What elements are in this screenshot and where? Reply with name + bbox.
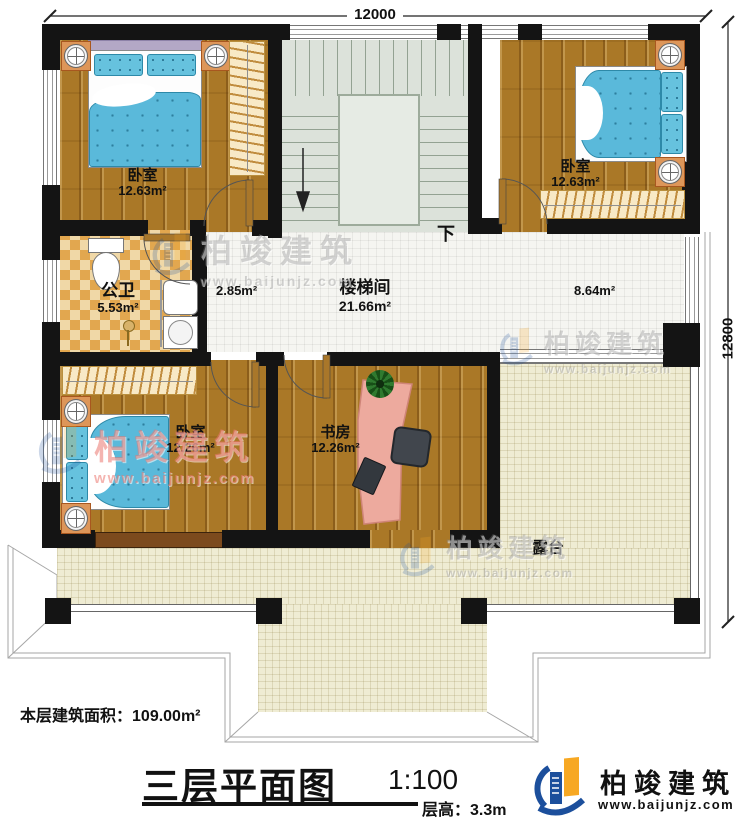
wall-segment xyxy=(468,24,482,234)
terrace-pillar xyxy=(45,598,71,624)
terrace-railing xyxy=(690,367,699,600)
potted-plant xyxy=(366,370,394,398)
room-label-terrace: 露台 xyxy=(520,540,576,558)
wall-segment xyxy=(256,352,284,366)
corridor-railing-window xyxy=(685,237,699,323)
terrace-bottom-floor xyxy=(57,548,690,608)
room-label-stair-hall: 楼梯间 21.66m² xyxy=(300,278,430,314)
nightstand xyxy=(61,41,91,71)
lamp-icon xyxy=(204,44,228,68)
wall-segment xyxy=(252,220,282,236)
wardrobe xyxy=(229,41,265,176)
room-label-bedroom-bottom-left: 卧室 12.26m² xyxy=(153,424,228,456)
terrace-railing xyxy=(485,604,676,612)
room-label-bedroom-top-right: 卧室 12.63m² xyxy=(538,158,613,190)
wall-segment xyxy=(42,24,60,70)
room-label-bathroom: 公卫 5.53m² xyxy=(88,281,148,315)
wardrobe xyxy=(62,366,197,395)
dimension-top-value: 12000 xyxy=(347,6,403,23)
terrace-railing xyxy=(69,604,258,612)
lamp-icon xyxy=(64,44,88,68)
lamp-icon xyxy=(658,43,682,67)
window xyxy=(542,25,648,39)
room-name: 卧室 xyxy=(153,424,228,441)
wardrobe xyxy=(540,190,685,219)
landing-area-label: 2.85m² xyxy=(216,283,257,298)
wall-segment xyxy=(42,322,60,420)
wall-segment xyxy=(266,366,278,532)
room-name: 卧室 xyxy=(538,158,613,175)
window xyxy=(43,260,57,322)
floor-area-annotation: 本层建筑面积：109.00m² xyxy=(20,702,201,726)
wall-segment xyxy=(190,220,206,236)
sliding-door xyxy=(95,532,224,548)
lamp-icon xyxy=(64,506,88,531)
nightstand xyxy=(61,503,91,534)
sink-basin xyxy=(168,320,193,345)
window xyxy=(43,420,57,482)
toilet-tank xyxy=(88,238,124,253)
nightstand xyxy=(61,396,91,427)
bed-pillow xyxy=(94,54,143,76)
room-name: 楼梯间 xyxy=(300,278,430,298)
brand-logo-icon xyxy=(531,756,593,818)
room-area: 12.26m² xyxy=(298,441,373,456)
terrace-railing-window xyxy=(500,349,663,364)
title-underline xyxy=(142,802,418,806)
terrace-pillar xyxy=(674,598,700,624)
stair-right-flight xyxy=(418,104,468,232)
bed-pillow xyxy=(66,462,88,502)
nightstand xyxy=(201,41,231,71)
window xyxy=(290,25,437,39)
bed-pillow xyxy=(661,114,683,154)
wall-segment xyxy=(663,323,700,367)
drain-pipe xyxy=(127,330,129,346)
office-chair xyxy=(390,426,433,469)
lamp-icon xyxy=(658,160,682,184)
room-name: 卧室 xyxy=(105,167,180,184)
wall-segment xyxy=(482,218,502,234)
room-area: 12.26m² xyxy=(153,441,228,456)
brand-company-name: 柏竣建筑 xyxy=(600,762,736,801)
floor-area-label: 本层建筑面积： xyxy=(20,708,132,725)
floor-drain xyxy=(123,320,135,332)
bed-pillow xyxy=(147,54,196,76)
wall-segment xyxy=(518,24,542,40)
wall-segment xyxy=(487,352,500,548)
washing-machine xyxy=(163,280,198,315)
lamp-icon xyxy=(64,399,88,424)
room-area: 5.53m² xyxy=(88,301,148,316)
stair-well-void xyxy=(338,94,420,226)
room-label-bedroom-top-left: 卧室 12.63m² xyxy=(105,167,180,199)
wall-segment xyxy=(450,530,500,548)
room-name: 露台 xyxy=(520,540,576,558)
room-area: 21.66m² xyxy=(300,298,430,314)
wall-segment xyxy=(327,352,492,366)
bed-pillow xyxy=(661,72,683,112)
dimension-right-value: 12800 xyxy=(720,313,737,365)
floor-height-annotation: 层高：3.3m xyxy=(422,796,506,820)
wall-segment xyxy=(42,352,211,366)
wall-segment xyxy=(42,220,148,236)
wall-segment xyxy=(547,218,700,234)
room-area: 12.63m² xyxy=(538,175,613,190)
terrace-pillar xyxy=(256,598,282,624)
room-label-study: 书房 12.26m² xyxy=(298,424,373,456)
floor-plan-canvas: 卧室 12.63m² 卧室 12.63m² 公卫 5.53m² 楼梯间 21.6… xyxy=(0,0,750,830)
room-name: 公卫 xyxy=(88,281,148,301)
brand-website: www.baijunjz.com xyxy=(598,797,734,812)
wall-segment xyxy=(268,24,282,238)
stair-upper-flight xyxy=(282,40,468,96)
room-area: 12.63m² xyxy=(105,184,180,199)
wall-segment xyxy=(222,530,370,548)
floor-height-label: 层高： xyxy=(422,802,470,819)
corridor-area-label: 8.64m² xyxy=(574,283,615,298)
nightstand xyxy=(655,157,685,187)
nightstand xyxy=(655,40,685,70)
wall-segment xyxy=(42,24,290,40)
wall-segment xyxy=(437,24,461,40)
room-name: 书房 xyxy=(298,424,373,441)
stair-down-label: 下 xyxy=(437,220,455,246)
terrace-protrusion-floor xyxy=(258,604,487,712)
drawing-scale: 1:100 xyxy=(388,764,458,796)
terrace-pillar xyxy=(461,598,487,624)
shower-glass xyxy=(160,280,162,347)
stair-left-flight xyxy=(282,104,338,232)
window xyxy=(43,70,57,185)
floor-height-value: 3.3m xyxy=(470,802,506,819)
floor-area-value: 109.00m² xyxy=(132,708,201,725)
